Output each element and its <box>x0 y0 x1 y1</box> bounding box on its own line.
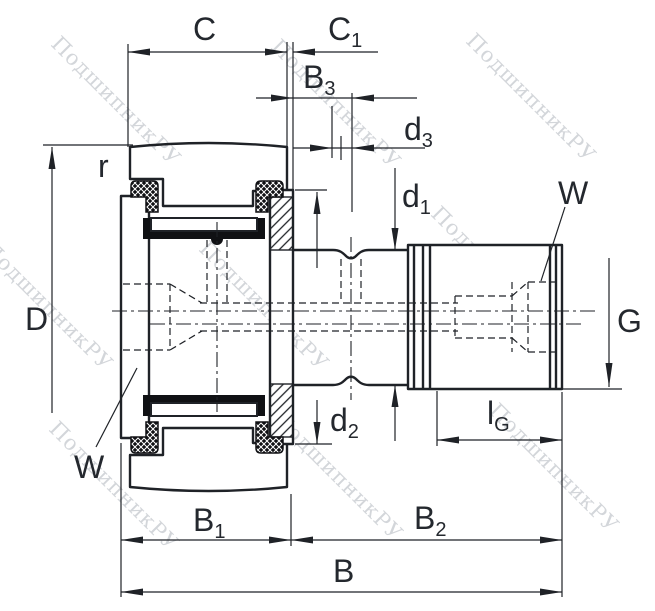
left-socket-cone-top <box>170 284 202 303</box>
bearing-dimension-drawing: ПодшипникРУ ПодшипникРУ ПодшипникРУ Подш… <box>0 0 655 611</box>
dim-label-d2: d2 <box>330 402 359 443</box>
technical-drawing-page: ПодшипникРУ ПодшипникРУ ПодшипникРУ Подш… <box>0 0 655 611</box>
flange-hatch-top <box>270 197 293 250</box>
dim-label-b1: B1 <box>193 502 225 543</box>
dimension-b: B <box>121 553 562 596</box>
watermark-text: ПодшипникРУ <box>0 237 118 376</box>
dim-label-b3: B3 <box>303 59 335 100</box>
needle-row-top <box>151 218 257 231</box>
left-socket-cone-bottom <box>170 331 202 350</box>
dim-label-w-right: W <box>558 175 589 211</box>
dim-label-w-left: W <box>74 449 105 485</box>
arrowhead <box>121 537 143 544</box>
arrowhead <box>540 437 562 444</box>
arrowhead <box>49 147 56 169</box>
threaded-stud-end <box>408 245 562 389</box>
arrowhead <box>540 589 562 596</box>
dim-label-r: r <box>98 148 109 184</box>
arrowhead <box>392 385 399 407</box>
arrowhead <box>121 589 143 596</box>
arrowhead <box>310 145 332 152</box>
arrowhead <box>128 49 150 56</box>
flange-hatch-bottom <box>270 384 293 437</box>
dim-label-d-outer: D <box>25 301 48 337</box>
arrowhead <box>392 228 399 250</box>
arrowhead <box>540 537 562 544</box>
dim-label-c1: C1 <box>328 11 362 52</box>
needle-row-bottom <box>151 403 257 416</box>
arrowhead <box>271 95 293 102</box>
dim-label-b2: B2 <box>414 500 446 541</box>
dim-label-c: C <box>193 11 216 47</box>
dimension-d2: d2 <box>295 190 359 444</box>
arrowhead <box>437 437 459 444</box>
dim-label-b: B <box>333 553 354 589</box>
watermark-text: ПодшипникРУ <box>194 237 333 376</box>
dim-label-g: G <box>617 303 642 339</box>
watermark-text: ПодшипникРУ <box>461 29 600 168</box>
arrowhead <box>352 95 374 102</box>
arrowhead <box>291 537 313 544</box>
dim-label-d3: d3 <box>404 111 433 152</box>
stud-flange <box>270 190 293 444</box>
arrowhead <box>606 363 613 387</box>
arrowhead <box>314 192 321 214</box>
arrowhead <box>269 537 291 544</box>
dimension-d-outer: D <box>25 145 133 413</box>
dim-label-d1: d1 <box>402 178 431 219</box>
